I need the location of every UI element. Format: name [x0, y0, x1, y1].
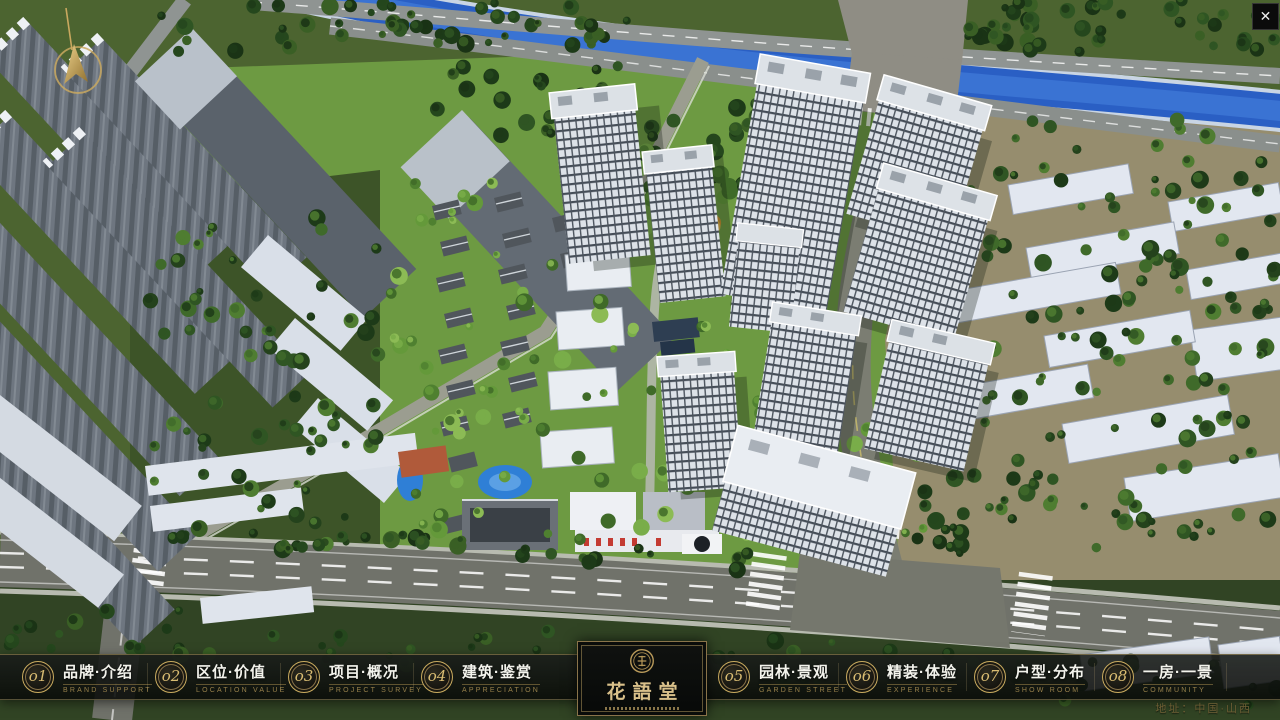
project-logo-panel[interactable]: 花語堂: [577, 641, 707, 716]
nav-item-subtitle: SHOW ROOM: [1015, 684, 1085, 694]
nav-item-subtitle: APPRECIATION: [462, 684, 540, 694]
nav-number-badge: o5: [718, 661, 750, 693]
project-name: 花語堂: [599, 677, 684, 704]
nav-item-subtitle: LOCATION VALUE: [196, 684, 286, 694]
entrance-gate: [462, 492, 722, 554]
nav-number-badge: o3: [288, 661, 320, 693]
nav-divider: [1094, 663, 1095, 691]
nav-item-landscape[interactable]: o5 园林·景观 GARDEN STREET: [718, 655, 847, 699]
address-text: 地址：中国·山西: [1155, 700, 1252, 716]
nav-number-badge: o7: [974, 661, 1006, 693]
nav-divider: [413, 663, 414, 691]
nav-item-label: 一房·一景: [1143, 661, 1213, 682]
nav-number-badge: o2: [155, 661, 187, 693]
close-button[interactable]: ✕: [1252, 3, 1279, 30]
nav-item-label: 区位·价值: [196, 661, 286, 682]
brand-seal-icon: [629, 648, 655, 674]
nav-number-badge: o6: [846, 661, 878, 693]
nav-item-label: 项目·概况: [329, 661, 423, 682]
nav-divider: [966, 663, 967, 691]
nav-item-floorplan-distribution[interactable]: o7 户型·分布 SHOW ROOM: [974, 655, 1085, 699]
nav-divider: [280, 663, 281, 691]
nav-item-brand-intro[interactable]: o1 品牌·介绍 BRAND SUPPORT: [22, 655, 152, 699]
nav-number-badge: o4: [421, 661, 453, 693]
nav-item-label: 品牌·介绍: [63, 661, 152, 682]
nav-item-architecture[interactable]: o4 建筑·鉴赏 APPRECIATION: [421, 655, 540, 699]
nav-item-interior-experience[interactable]: o6 精装·体验 EXPERIENCE: [846, 655, 957, 699]
nav-item-subtitle: GARDEN STREET: [759, 684, 847, 694]
nav-item-project-overview[interactable]: o3 项目·概况 PROJECT SURVEY: [288, 655, 423, 699]
nav-divider: [1226, 663, 1227, 691]
nav-item-subtitle: COMMUNITY: [1143, 684, 1213, 694]
nav-item-location-value[interactable]: o2 区位·价值 LOCATION VALUE: [155, 655, 286, 699]
nav-item-label: 建筑·鉴赏: [462, 661, 540, 682]
nav-item-label: 户型·分布: [1015, 661, 1085, 682]
nav-item-subtitle: PROJECT SURVEY: [329, 684, 423, 694]
nav-item-label: 精装·体验: [887, 661, 957, 682]
presentation-window: ✕ o1 品牌·介绍 BRAND SUPPORT o2 区位·价值 LOCATI…: [0, 0, 1280, 720]
nav-number-badge: o1: [22, 661, 54, 693]
close-icon: ✕: [1260, 8, 1272, 24]
logo-tagline-decoration: [605, 707, 679, 710]
aerial-masterplan-render[interactable]: [0, 0, 1280, 720]
nav-item-subtitle: BRAND SUPPORT: [63, 684, 152, 694]
nav-item-label: 园林·景观: [759, 661, 847, 682]
nav-number-badge: o8: [1102, 661, 1134, 693]
nav-item-subtitle: EXPERIENCE: [887, 684, 957, 694]
nav-item-room-view[interactable]: o8 一房·一景 COMMUNITY: [1102, 655, 1213, 699]
nav-divider: [147, 663, 148, 691]
nav-divider: [838, 663, 839, 691]
